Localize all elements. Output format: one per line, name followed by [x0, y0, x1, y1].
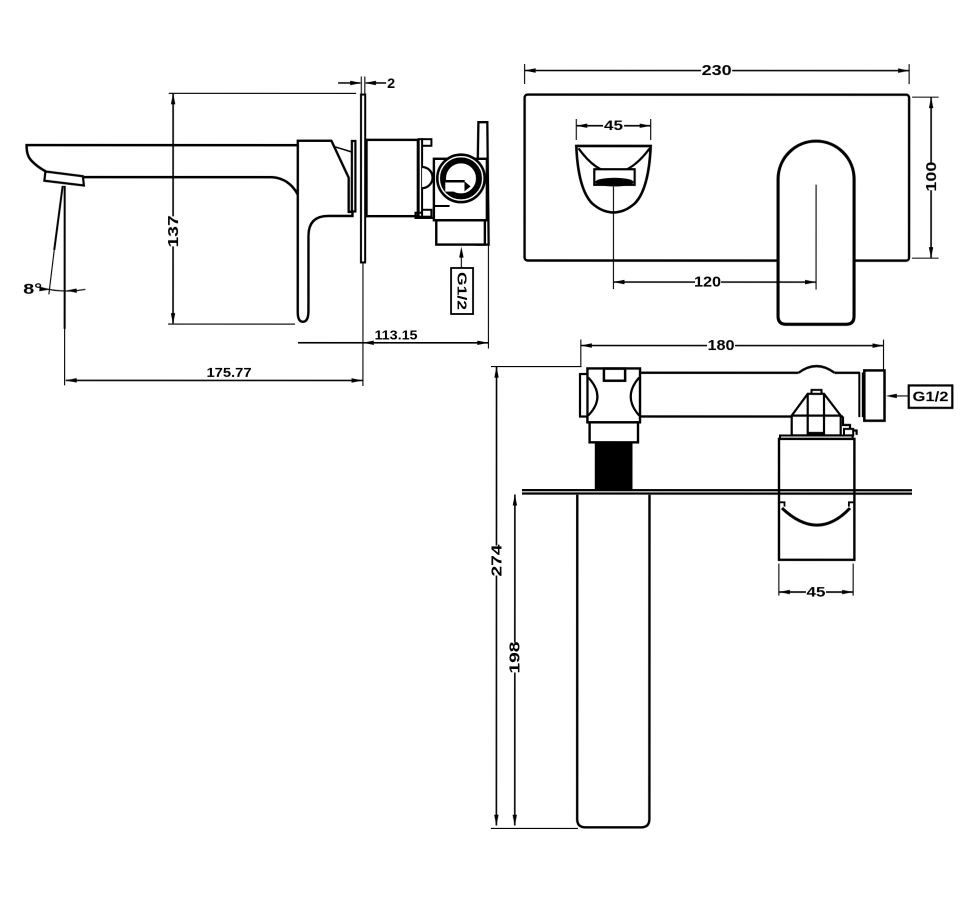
svg-text:274: 274 — [489, 545, 505, 577]
svg-text:175.77: 175.77 — [207, 365, 252, 380]
svg-text:45: 45 — [604, 117, 623, 133]
svg-text:8°: 8° — [23, 282, 42, 298]
svg-text:G1/2: G1/2 — [913, 389, 949, 404]
svg-text:100: 100 — [923, 162, 940, 192]
svg-text:45: 45 — [806, 584, 825, 600]
svg-text:120: 120 — [694, 275, 721, 291]
svg-text:G1/2: G1/2 — [455, 272, 470, 310]
svg-text:230: 230 — [702, 62, 732, 79]
svg-text:198: 198 — [508, 642, 524, 674]
svg-text:137: 137 — [165, 215, 182, 247]
svg-text:180: 180 — [708, 338, 735, 354]
svg-text:2: 2 — [387, 76, 395, 91]
svg-text:113.15: 113.15 — [375, 327, 418, 342]
